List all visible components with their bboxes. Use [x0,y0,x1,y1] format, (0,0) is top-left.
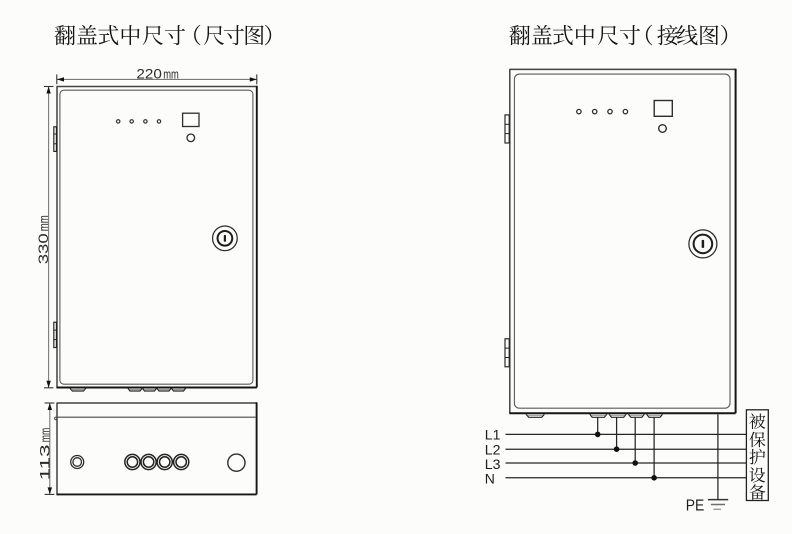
svg-text:mm: mm [163,66,179,81]
svg-text:mm: mm [36,215,51,231]
svg-text:L2: L2 [485,441,501,457]
svg-text:mm: mm [37,428,52,443]
svg-text:113: 113 [36,444,52,480]
svg-text:N: N [485,470,495,486]
svg-text:220: 220 [136,65,162,81]
svg-text:L1: L1 [485,426,501,442]
svg-text:PE: PE [686,498,705,515]
svg-text:330: 330 [35,233,51,264]
